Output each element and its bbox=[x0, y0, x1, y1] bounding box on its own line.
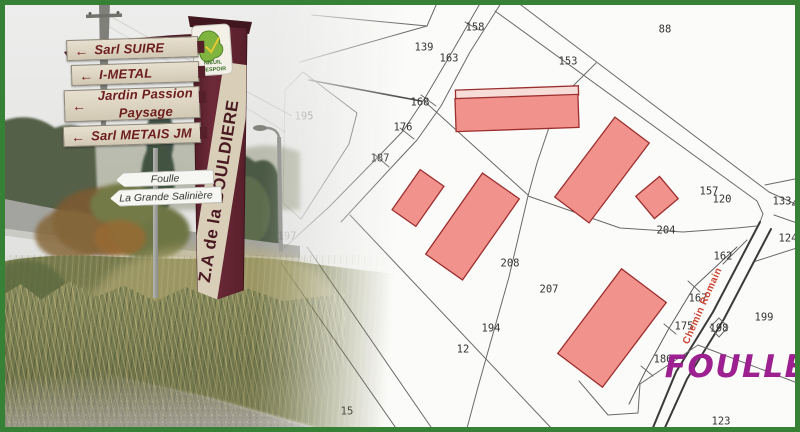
parcel-label-207: 207 bbox=[540, 284, 559, 296]
parcel-label-12: 12 bbox=[457, 344, 470, 356]
arrow-sign-label: La Grande Salinière bbox=[119, 189, 213, 204]
direction-sign-i-metal: ← I-METAL bbox=[71, 61, 200, 86]
photo-panel: Z.A de la BOULDIERE NIEUIL L'ESPOIR ← Sa… bbox=[0, 0, 420, 432]
screenshot-stage: 1391581631538816817618719519720820720419… bbox=[0, 0, 800, 432]
mini-signpost-pole bbox=[153, 148, 158, 298]
parcel-label-49: 49 bbox=[792, 199, 800, 211]
directional-sign-stack: ← Sarl SUIRE ← I-METAL ← Jardin Passion … bbox=[56, 36, 201, 151]
mount-tab bbox=[198, 66, 205, 78]
parcel-label-124: 124 bbox=[779, 233, 798, 245]
arrow-sign-label: Foulle bbox=[150, 172, 179, 185]
parcel-label-123: 123 bbox=[712, 416, 731, 428]
map-building bbox=[455, 94, 579, 131]
sign-label: I-METAL bbox=[99, 66, 153, 81]
parcel-label-163: 163 bbox=[440, 53, 459, 65]
left-arrow-icon: ← bbox=[71, 129, 85, 143]
mount-tab bbox=[200, 127, 207, 139]
parcel-label-88: 88 bbox=[659, 24, 672, 36]
sign-label: Sarl METAIS JM bbox=[91, 126, 192, 142]
sign-label-line2: Paysage bbox=[119, 104, 174, 121]
parcel-label-153: 153 bbox=[559, 56, 578, 68]
parcel-label-162: 162 bbox=[714, 251, 733, 263]
parcel-label-133: 133 bbox=[773, 196, 792, 208]
direction-sign-jardin-passion-paysage: ← Jardin Passion Paysage bbox=[64, 86, 201, 122]
parcel-label-198: 198 bbox=[710, 323, 729, 335]
foreground-grass-overlay bbox=[0, 278, 345, 432]
direction-sign-sarl-metais-jm: ← Sarl METAIS JM bbox=[63, 122, 202, 147]
parcel-label-208: 208 bbox=[501, 258, 520, 270]
sign-label-line1: Jardin Passion bbox=[97, 85, 193, 103]
parcel-label-199: 199 bbox=[755, 312, 774, 324]
parcel-label-194: 194 bbox=[482, 323, 501, 335]
parcel-label-204: 204 bbox=[657, 225, 676, 237]
map-watermark: FOULLE bbox=[665, 349, 800, 385]
left-arrow-icon: ← bbox=[74, 43, 88, 57]
left-arrow-icon: ← bbox=[72, 99, 86, 113]
parcel-label-120: 120 bbox=[713, 194, 732, 206]
mount-tab bbox=[197, 41, 204, 53]
direction-sign-sarl-suire: ← Sarl SUIRE bbox=[66, 36, 199, 61]
parcel-label-158: 158 bbox=[466, 22, 485, 34]
left-arrow-icon: ← bbox=[79, 68, 93, 82]
mount-tab bbox=[199, 91, 206, 103]
sign-label: Sarl SUIRE bbox=[94, 41, 164, 56]
